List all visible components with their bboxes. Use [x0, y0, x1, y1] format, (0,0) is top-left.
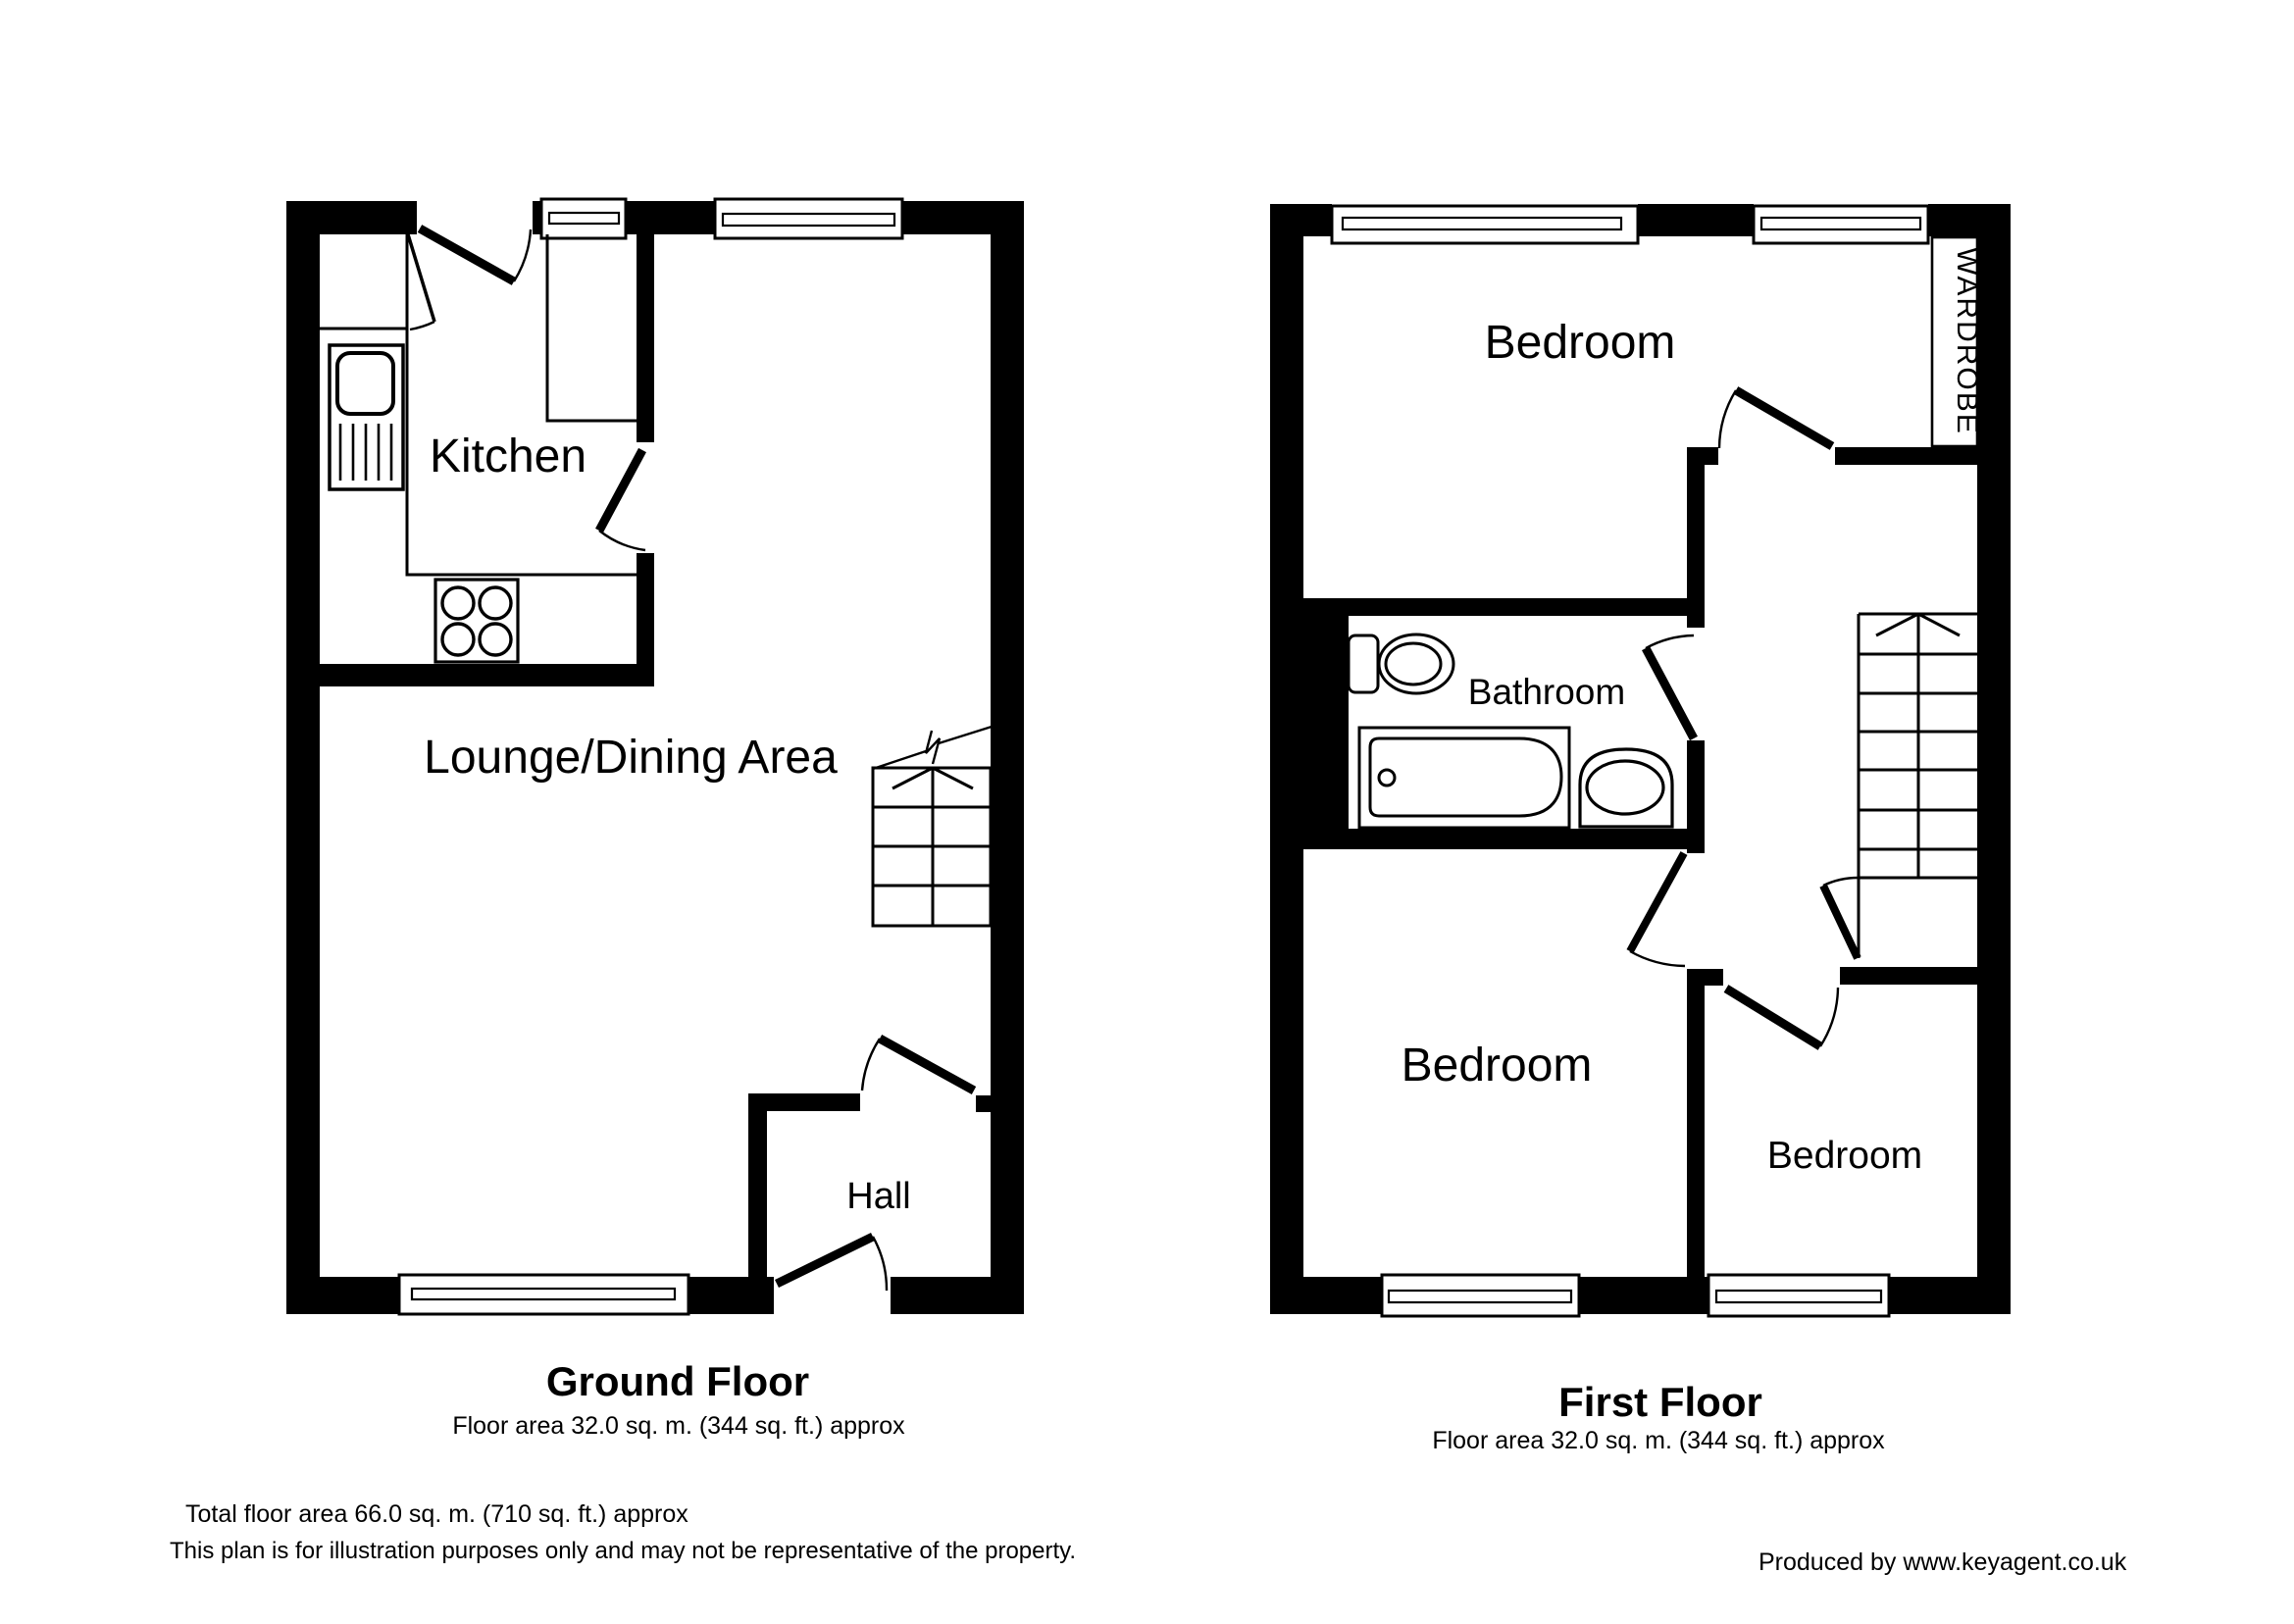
svg-text:Kitchen: Kitchen — [430, 431, 586, 482]
svg-text:Floor area 32.0 sq. m. (344 sq: Floor area 32.0 sq. m. (344 sq. ft.) app… — [452, 1412, 905, 1440]
svg-text:This plan is for illustration: This plan is for illustration purposes o… — [170, 1538, 1076, 1564]
svg-text:Floor area 32.0 sq. m. (344 sq: Floor area 32.0 sq. m. (344 sq. ft.) app… — [1432, 1427, 1885, 1454]
svg-text:WARDROBE: WARDROBE — [1951, 247, 1983, 435]
svg-text:Hall: Hall — [846, 1176, 910, 1217]
svg-text:First Floor: First Floor — [1558, 1379, 1762, 1425]
svg-text:Bathroom: Bathroom — [1468, 672, 1625, 712]
svg-text:Total floor area 66.0 sq. m. (: Total floor area 66.0 sq. m. (710 sq. ft… — [185, 1500, 688, 1528]
svg-text:Bedroom: Bedroom — [1767, 1135, 1922, 1177]
svg-text:Bedroom: Bedroom — [1402, 1040, 1593, 1091]
svg-text:Lounge/Dining Area: Lounge/Dining Area — [424, 732, 838, 784]
svg-text:Produced by www.keyagent.co.uk: Produced by www.keyagent.co.uk — [1759, 1548, 2127, 1576]
svg-text:Ground Floor: Ground Floor — [546, 1358, 809, 1404]
svg-text:Bedroom: Bedroom — [1485, 317, 1676, 369]
